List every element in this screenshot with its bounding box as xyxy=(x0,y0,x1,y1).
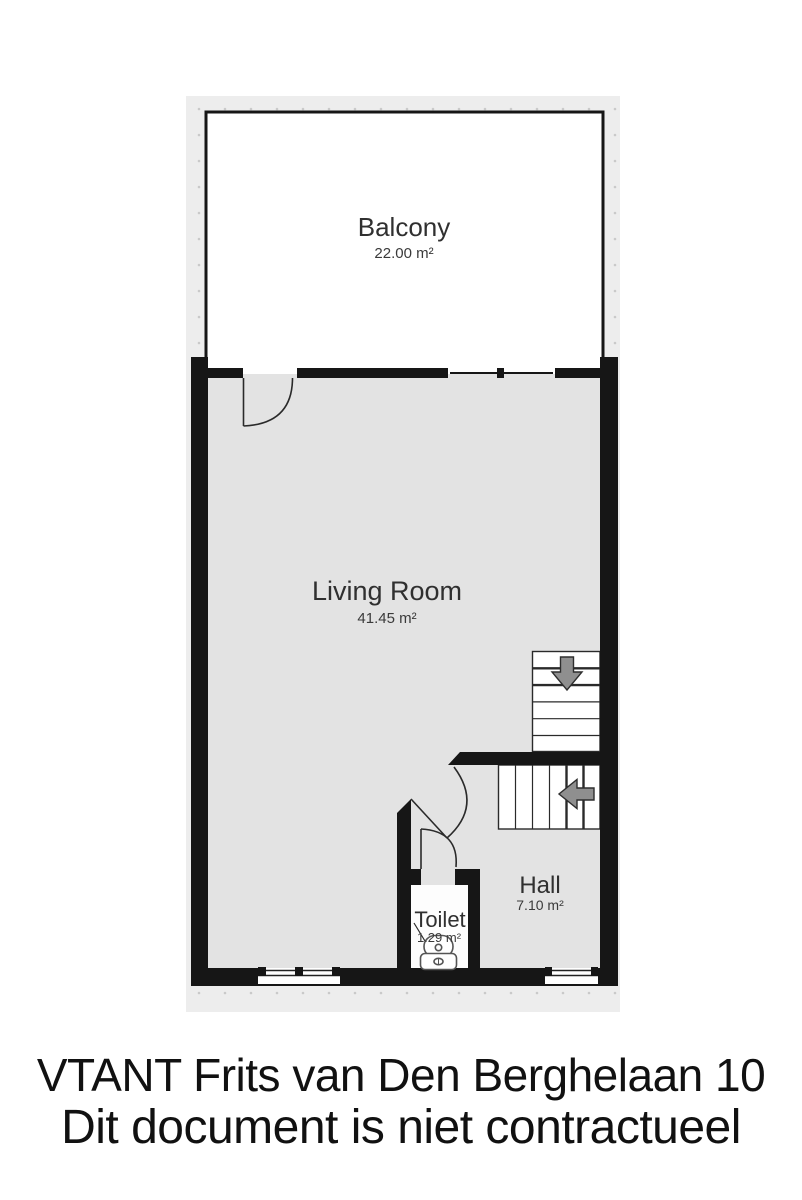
hall-area: 7.10 m² xyxy=(516,897,564,913)
window-bottom-right xyxy=(545,967,598,984)
stairs-upper xyxy=(533,652,601,752)
wall-top-b xyxy=(297,368,448,378)
hall-label: Hall xyxy=(519,872,560,899)
wall-interior-hall xyxy=(448,752,618,765)
balcony-label: Balcony xyxy=(358,212,451,242)
wall-left xyxy=(191,357,208,986)
balcony-area: 22.00 m² xyxy=(374,245,433,262)
stairs-lower xyxy=(499,765,601,829)
living-room-area: 41.45 m² xyxy=(357,610,416,627)
wall-top-a xyxy=(208,368,243,378)
footer-disclaimer: Dit document is niet contractueel xyxy=(0,1100,802,1155)
toilet-label: Toilet xyxy=(414,907,465,932)
balcony-room xyxy=(206,112,603,376)
floor-plan: Balcony 22.00 m² Living Room 41.45 m² Ha… xyxy=(0,0,802,1030)
wall-toilet-stub-left xyxy=(397,869,421,885)
wall-top-c xyxy=(555,368,602,378)
page: Balcony 22.00 m² Living Room 41.45 m² Ha… xyxy=(0,0,802,1200)
toilet-area: 1.29 m² xyxy=(417,930,462,945)
window-bottom-left xyxy=(258,967,340,984)
wall-toilet-right xyxy=(468,869,480,968)
wall-right xyxy=(600,357,618,986)
footer-address: VTANT Frits van Den Berghelaan 10 xyxy=(0,1048,802,1102)
living-room-label: Living Room xyxy=(312,576,462,606)
